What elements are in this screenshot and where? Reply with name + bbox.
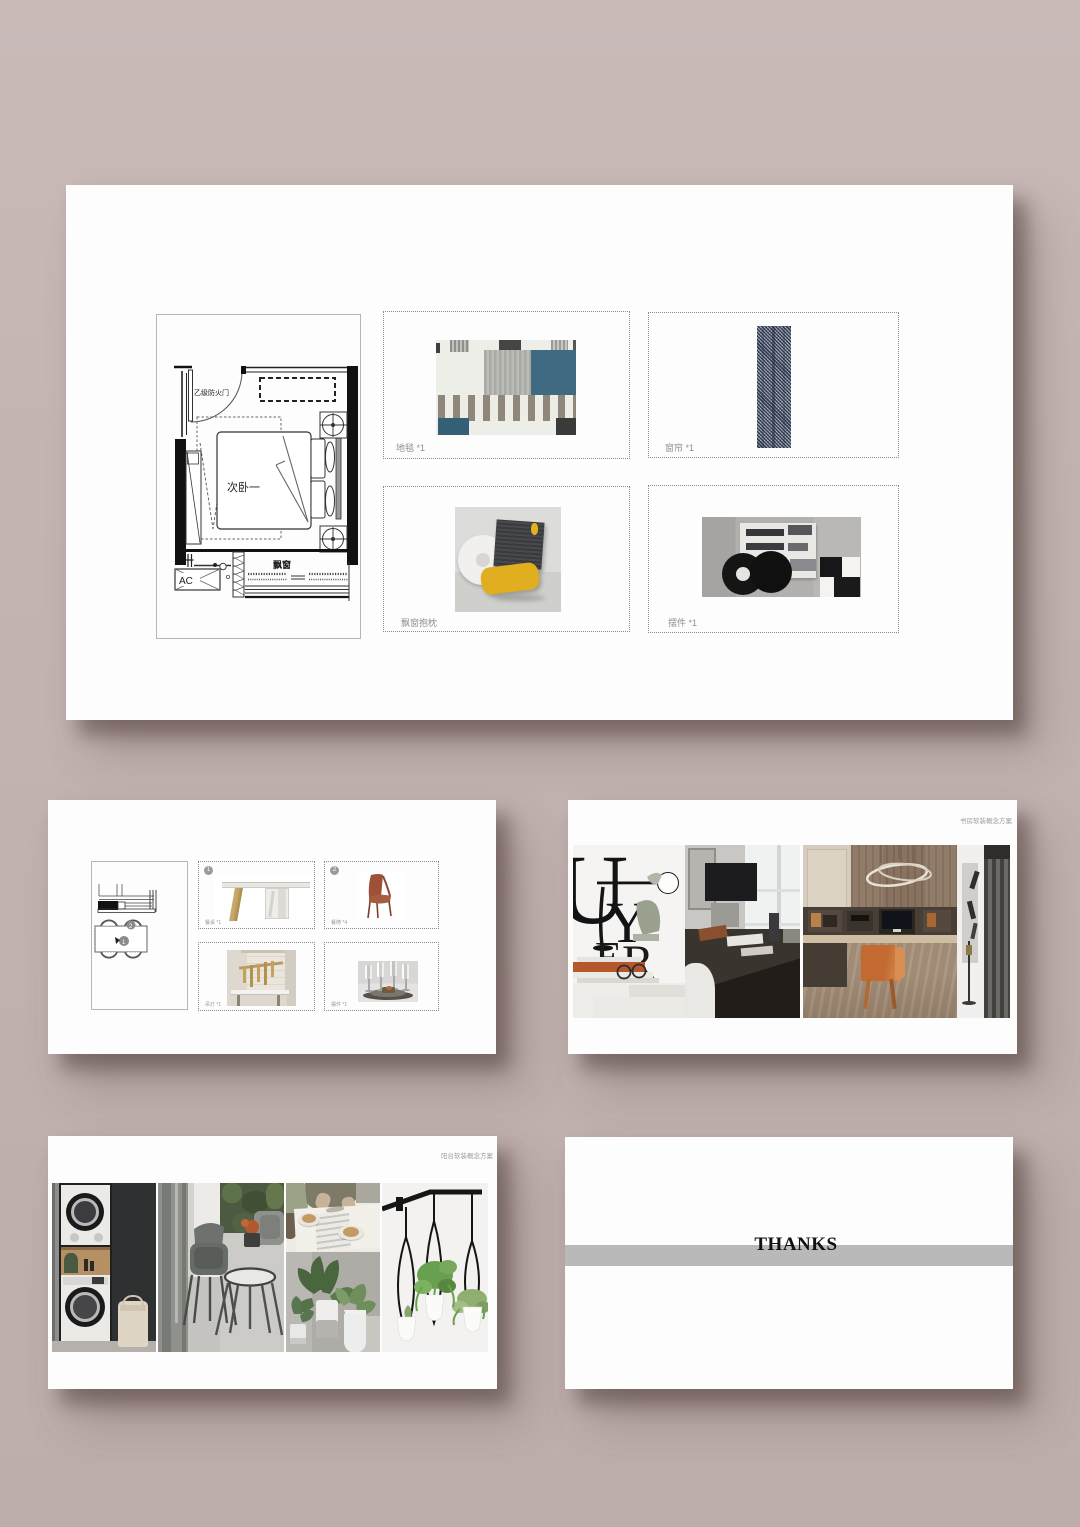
svg-text:飘窗: 飘窗	[273, 559, 291, 570]
svg-text:AC: AC	[179, 576, 193, 587]
svg-text:乙级防火门: 乙级防火门	[194, 388, 229, 397]
svg-text:次卧一: 次卧一	[227, 480, 260, 494]
